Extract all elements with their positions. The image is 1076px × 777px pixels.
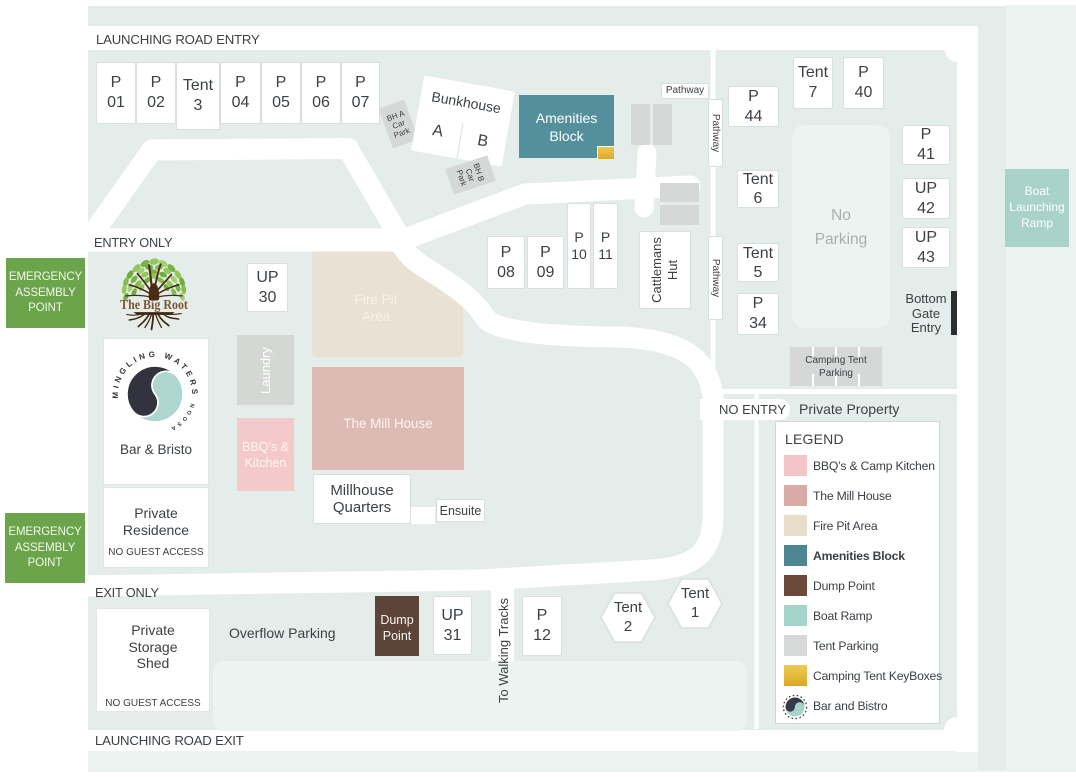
svg-text:The Big Root: The Big Root: [120, 297, 189, 312]
